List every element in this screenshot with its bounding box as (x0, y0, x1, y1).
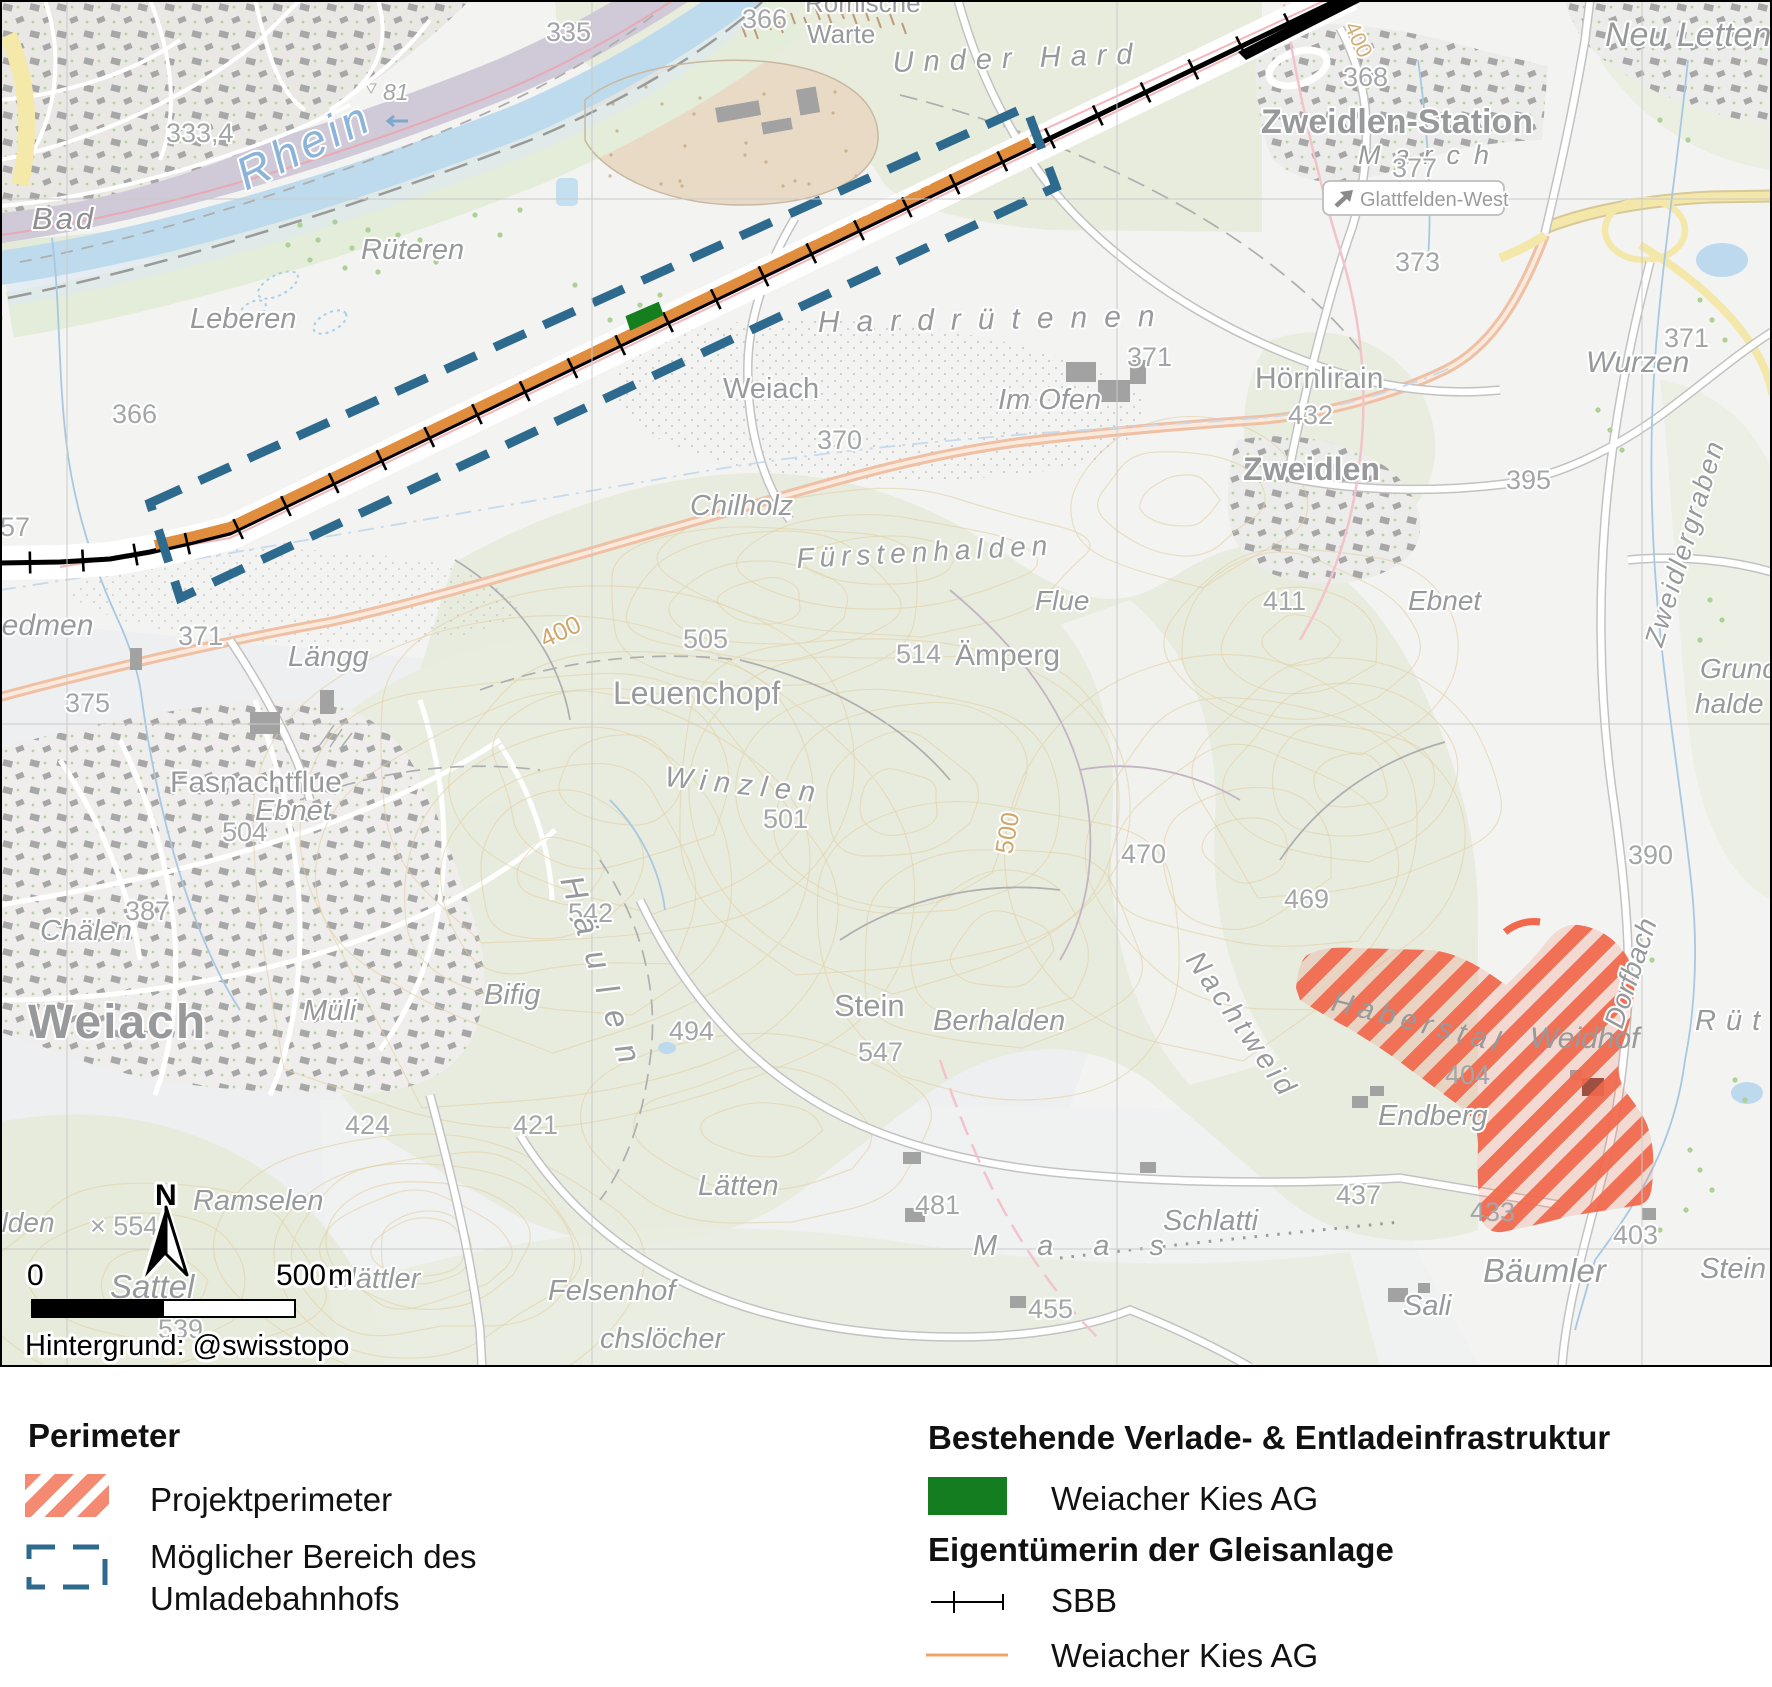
svg-text:Weiach: Weiach (723, 373, 819, 405)
svg-text:371: 371 (1127, 342, 1172, 372)
svg-text:390: 390 (1628, 840, 1673, 870)
svg-text:Längg: Längg (288, 641, 369, 673)
svg-text:370: 370 (817, 425, 862, 455)
svg-text:Berhalden: Berhalden (933, 1005, 1065, 1037)
svg-text:chslöcher: chslöcher (600, 1323, 725, 1355)
svg-text:× 554: × 554 (90, 1211, 158, 1241)
svg-text:Sali: Sali (1403, 1290, 1453, 1322)
svg-text:494: 494 (669, 1016, 714, 1046)
svg-text:Weiach: Weiach (28, 996, 207, 1049)
svg-text:Römische: Römische (805, 0, 921, 18)
svg-text:437: 437 (1336, 1180, 1381, 1210)
svg-text:Redmen: Redmen (0, 609, 93, 642)
svg-text:Im Ofen: Im Ofen (998, 384, 1101, 416)
svg-text:500: 500 (276, 1259, 326, 1292)
svg-text:Perimeter: Perimeter (28, 1417, 180, 1454)
svg-text:387: 387 (125, 896, 170, 926)
svg-text:SBB: SBB (1051, 1582, 1117, 1619)
svg-text:514: 514 (896, 639, 941, 669)
svg-text:505: 505 (683, 624, 728, 654)
svg-text:Warte: Warte (807, 19, 875, 49)
svg-text:Glattfelden-West: Glattfelden-West (1360, 189, 1509, 211)
svg-text:481: 481 (915, 1190, 960, 1220)
svg-text:Felsenhof: Felsenhof (548, 1275, 678, 1307)
svg-text:Bestehende Verlade- & Entladei: Bestehende Verlade- & Entladeinfrastrukt… (928, 1419, 1610, 1456)
svg-text:333,4: 333,4 (166, 118, 234, 148)
svg-text:547: 547 (858, 1037, 903, 1067)
svg-text:Weiacher Kies AG: Weiacher Kies AG (1051, 1480, 1318, 1517)
svg-text:504: 504 (222, 817, 267, 847)
svg-text:368: 368 (1343, 62, 1388, 92)
svg-text:Leuenchopf: Leuenchopf (613, 675, 780, 711)
svg-text:Stein: Stein (1700, 1253, 1766, 1285)
svg-text:404: 404 (1445, 1060, 1490, 1090)
svg-text:375: 375 (65, 688, 110, 718)
svg-text:Umladebahnhofs: Umladebahnhofs (150, 1580, 400, 1617)
svg-text:Lätten: Lätten (698, 1170, 779, 1202)
svg-text:377: 377 (1392, 153, 1437, 183)
svg-text:Neu Letten: Neu Letten (1605, 16, 1771, 54)
svg-text:470: 470 (1121, 839, 1166, 869)
svg-text:Chilholz: Chilholz (690, 490, 794, 522)
svg-text:Ebnet: Ebnet (1408, 585, 1482, 616)
svg-text:0: 0 (27, 1259, 44, 1292)
svg-text:Schlatti: Schlatti (1163, 1205, 1260, 1237)
svg-text:alden: alden (0, 1207, 55, 1238)
svg-text:Endberg: Endberg (1378, 1100, 1488, 1132)
svg-text:455: 455 (1028, 1294, 1073, 1324)
svg-text:433: 433 (1470, 1197, 1515, 1227)
svg-text:371: 371 (178, 621, 223, 651)
svg-text:m: m (328, 1259, 353, 1292)
svg-text:Rüteren: Rüteren (361, 234, 464, 266)
svg-text:57: 57 (0, 512, 30, 542)
svg-text:Rüt: Rüt (1695, 1005, 1770, 1037)
svg-text:Zweidlen: Zweidlen (1243, 451, 1380, 487)
svg-text:432: 432 (1288, 400, 1333, 430)
svg-text:366: 366 (742, 4, 787, 34)
svg-text:Hardrütenen: Hardrütenen (818, 300, 1172, 339)
svg-text:403: 403 (1613, 1220, 1658, 1250)
svg-text:Stein: Stein (834, 988, 905, 1023)
svg-text:Zweidlen-Station: Zweidlen-Station (1261, 103, 1533, 141)
svg-text:Ramselen: Ramselen (193, 1185, 324, 1217)
svg-text:halde: halde (1695, 688, 1764, 719)
svg-text:Flue: Flue (1035, 585, 1089, 616)
svg-text:Bad: Bad (32, 201, 96, 236)
svg-text:Bifig: Bifig (484, 979, 540, 1011)
svg-text:Eigentümerin der Gleisanlage: Eigentümerin der Gleisanlage (928, 1531, 1394, 1568)
svg-text:371: 371 (1664, 323, 1709, 353)
svg-text:Chälen: Chälen (40, 915, 132, 947)
svg-text:411: 411 (1263, 586, 1306, 616)
svg-text:Möglicher Bereich des: Möglicher Bereich des (150, 1538, 477, 1575)
svg-text:421: 421 (513, 1110, 558, 1140)
svg-text:Leberen: Leberen (190, 303, 296, 335)
svg-text:81: 81 (383, 79, 409, 105)
svg-text:395: 395 (1506, 465, 1551, 495)
svg-text:Hintergrund: @swisstopo: Hintergrund: @swisstopo (25, 1330, 349, 1362)
svg-text:Projektperimeter: Projektperimeter (150, 1481, 392, 1518)
svg-text:469: 469 (1284, 884, 1329, 914)
svg-text:Ämperg: Ämperg (955, 639, 1060, 672)
svg-text:366: 366 (112, 399, 157, 429)
svg-text:Grunc: Grunc (1700, 653, 1772, 684)
svg-text:373: 373 (1395, 247, 1440, 277)
svg-text:Hörnlirain: Hörnlirain (1255, 362, 1383, 395)
svg-text:335: 335 (546, 17, 591, 47)
svg-text:Weiacher Kies AG: Weiacher Kies AG (1051, 1637, 1318, 1674)
svg-text:424: 424 (345, 1110, 390, 1140)
svg-text:Bäumler: Bäumler (1483, 1252, 1608, 1289)
svg-text:Müli: Müli (303, 995, 358, 1027)
svg-text:501: 501 (763, 804, 808, 834)
